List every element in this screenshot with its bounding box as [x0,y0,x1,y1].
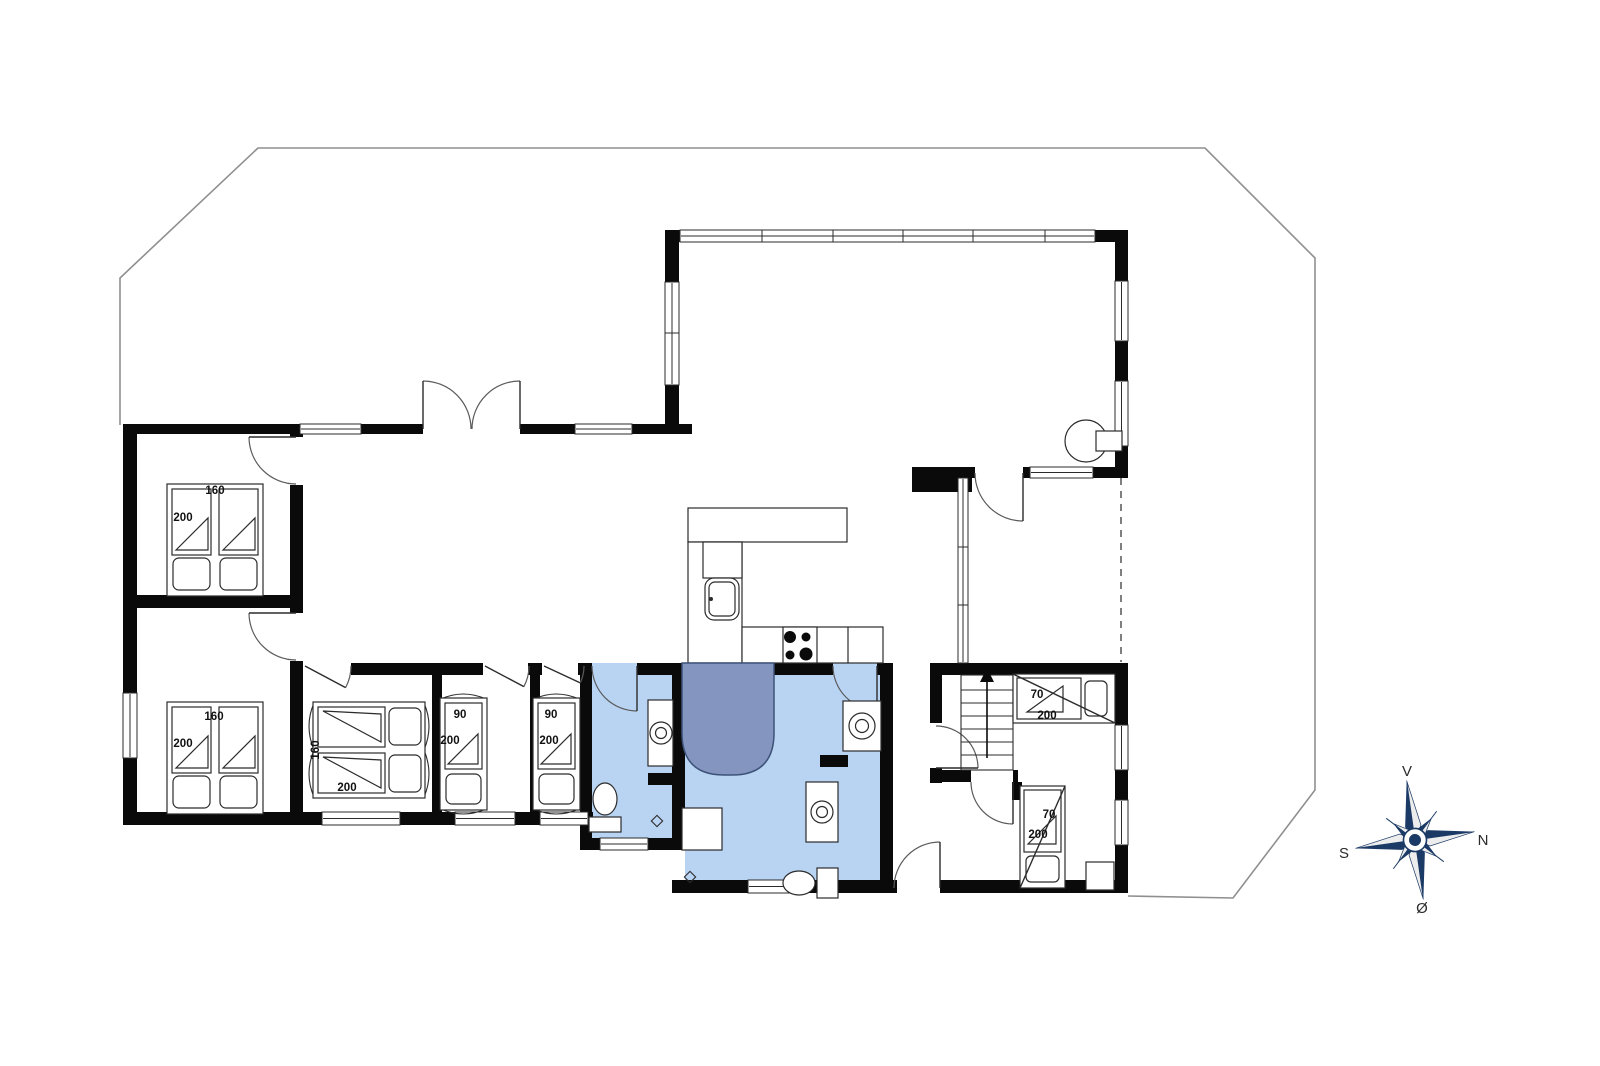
washing-machine [843,701,881,751]
bed-dimension-label: 160 [204,711,223,723]
window-wing-east2 [1115,800,1128,845]
compass-direction-label: V [1402,763,1412,780]
window-living-east1 [1115,281,1128,341]
bunk-bed-room1 [1013,674,1115,723]
bed-dimension-label: 200 [539,735,558,747]
bath2-cabinet [682,808,722,850]
shower [682,663,774,775]
window-band-north [680,230,1095,242]
window-glass-partition [958,478,968,663]
compass-direction-label: Ø [1416,900,1428,917]
bath2-sink [806,782,838,842]
window-bedroom2-west [123,693,137,758]
window-living-west [665,282,679,385]
window-entry-east [575,424,632,434]
window-porch-north [1030,467,1093,478]
opening-porch-door [975,467,1023,478]
bed-dimension-label: 160 [310,740,322,759]
opening-bath2-door [833,663,877,675]
floor-plan-svg: 16020016020016020090200902007020070200VN… [0,0,1600,1066]
door-stair-room [936,726,978,768]
kitchen-appliance [703,542,742,578]
door-bedroom2 [249,613,296,660]
opening-bedroom1-door [290,437,303,485]
compass-direction-label: N [1478,832,1489,849]
bed-dimension-label: 90 [454,709,467,721]
bed-dimension-label: 200 [1037,710,1056,722]
wood-stove [1065,420,1122,462]
window-entry-west [300,424,361,434]
bed-dimension-label: 90 [545,709,558,721]
kitchen-sink [705,578,739,620]
bed-double-bedroom1 [167,484,263,596]
door-bunkroom2 [971,782,1013,824]
opening-stair-room-door [930,723,942,768]
door-entrance-right [472,381,520,429]
compass-direction-label: S [1339,845,1349,862]
opening-bath1-door [592,663,637,675]
bed-dimension-label: 200 [337,782,356,794]
window-bath1-south [600,838,648,850]
compass-rose [1347,772,1483,908]
bed-dimension-label: 200 [440,735,459,747]
door-bedroom1 [249,437,296,484]
bed-double-bedroom3 [309,702,429,798]
bed-dimension-label: 200 [173,512,192,524]
floor-plan: 16020016020016020090200902007020070200VN… [0,0,1600,1066]
door-entrance-left [423,381,471,429]
bed-dimension-label: 200 [173,738,192,750]
window-wing-east1 [1115,725,1128,770]
stove-burners [783,627,817,663]
bed-dimension-label: 70 [1043,809,1056,821]
door-porch [975,473,1023,521]
bed-dimension-label: 160 [205,485,224,497]
bath1-sink [648,700,673,766]
opening-bunkroom2-door [971,770,1013,782]
kitchen-counter-top [688,508,847,542]
opening-bedroom2-door [290,613,303,661]
stairs [961,668,1013,770]
opening-back-door [897,880,940,893]
closet [1086,862,1114,890]
bed-dimension-label: 70 [1031,689,1044,701]
bed-dimension-label: 200 [1028,829,1047,841]
window-bedroom3-south [322,812,400,825]
